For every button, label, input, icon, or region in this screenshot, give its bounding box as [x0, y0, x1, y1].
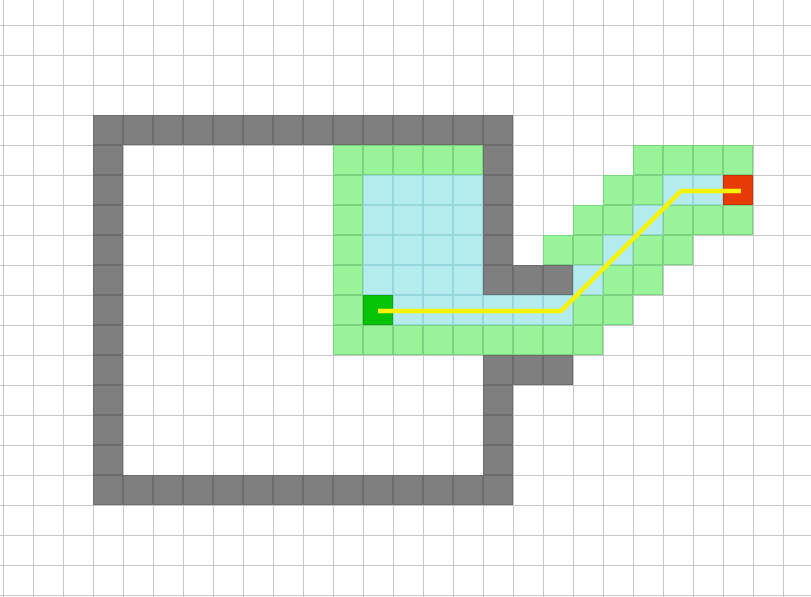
pathfinding-canvas[interactable]: [0, 0, 811, 597]
wall-cell[interactable]: [483, 115, 513, 145]
visited-cell[interactable]: [393, 175, 423, 205]
wall-cell[interactable]: [93, 325, 123, 355]
wall-cell[interactable]: [93, 295, 123, 325]
wall-cell[interactable]: [393, 475, 423, 505]
wall-cell[interactable]: [333, 475, 363, 505]
wall-cell[interactable]: [93, 145, 123, 175]
visited-cell[interactable]: [363, 235, 393, 265]
visited-cell[interactable]: [693, 175, 723, 205]
frontier-cell[interactable]: [423, 145, 453, 175]
wall-cell[interactable]: [93, 475, 123, 505]
visited-cell[interactable]: [423, 175, 453, 205]
wall-cell[interactable]: [273, 115, 303, 145]
visited-cell[interactable]: [453, 265, 483, 295]
wall-cell[interactable]: [183, 475, 213, 505]
wall-cell[interactable]: [363, 475, 393, 505]
visited-cell[interactable]: [363, 205, 393, 235]
wall-cell[interactable]: [543, 265, 573, 295]
visited-cell[interactable]: [453, 295, 483, 325]
wall-cell[interactable]: [543, 355, 573, 385]
frontier-cell[interactable]: [543, 325, 573, 355]
visited-cell[interactable]: [393, 205, 423, 235]
wall-cell[interactable]: [483, 145, 513, 175]
frontier-cell[interactable]: [603, 295, 633, 325]
wall-cell[interactable]: [93, 205, 123, 235]
visited-cell[interactable]: [603, 235, 633, 265]
visited-cell[interactable]: [423, 205, 453, 235]
wall-cell[interactable]: [483, 445, 513, 475]
frontier-cell[interactable]: [573, 295, 603, 325]
wall-cell[interactable]: [423, 115, 453, 145]
frontier-cell[interactable]: [393, 325, 423, 355]
wall-cell[interactable]: [153, 475, 183, 505]
wall-cell[interactable]: [93, 175, 123, 205]
frontier-cell[interactable]: [603, 265, 633, 295]
wall-cell[interactable]: [183, 115, 213, 145]
wall-cell[interactable]: [123, 115, 153, 145]
wall-cell[interactable]: [483, 355, 513, 385]
wall-cell[interactable]: [93, 445, 123, 475]
wall-cell[interactable]: [153, 115, 183, 145]
visited-cell[interactable]: [483, 295, 513, 325]
wall-cell[interactable]: [483, 475, 513, 505]
frontier-cell[interactable]: [723, 145, 753, 175]
frontier-cell[interactable]: [603, 205, 633, 235]
cell-layer: [0, 0, 811, 597]
wall-cell[interactable]: [513, 355, 543, 385]
visited-cell[interactable]: [423, 265, 453, 295]
wall-cell[interactable]: [483, 265, 513, 295]
visited-cell[interactable]: [633, 205, 663, 235]
frontier-cell[interactable]: [693, 145, 723, 175]
frontier-cell[interactable]: [573, 235, 603, 265]
frontier-cell[interactable]: [393, 145, 423, 175]
visited-cell[interactable]: [393, 295, 423, 325]
frontier-cell[interactable]: [633, 235, 663, 265]
frontier-cell[interactable]: [693, 205, 723, 235]
frontier-cell[interactable]: [723, 205, 753, 235]
wall-cell[interactable]: [513, 265, 543, 295]
wall-cell[interactable]: [363, 115, 393, 145]
wall-cell[interactable]: [93, 355, 123, 385]
wall-cell[interactable]: [453, 115, 483, 145]
visited-cell[interactable]: [363, 265, 393, 295]
visited-cell[interactable]: [453, 235, 483, 265]
wall-cell[interactable]: [213, 475, 243, 505]
visited-cell[interactable]: [513, 295, 543, 325]
visited-cell[interactable]: [393, 235, 423, 265]
wall-cell[interactable]: [423, 475, 453, 505]
frontier-cell[interactable]: [633, 265, 663, 295]
visited-cell[interactable]: [393, 265, 423, 295]
frontier-cell[interactable]: [423, 325, 453, 355]
frontier-cell[interactable]: [663, 235, 693, 265]
frontier-cell[interactable]: [333, 145, 363, 175]
wall-cell[interactable]: [243, 475, 273, 505]
wall-cell[interactable]: [483, 205, 513, 235]
visited-cell[interactable]: [453, 205, 483, 235]
frontier-cell[interactable]: [453, 145, 483, 175]
frontier-cell[interactable]: [363, 145, 393, 175]
visited-cell[interactable]: [663, 175, 693, 205]
frontier-cell[interactable]: [333, 265, 363, 295]
wall-cell[interactable]: [123, 475, 153, 505]
wall-cell[interactable]: [243, 115, 273, 145]
frontier-cell[interactable]: [633, 145, 663, 175]
wall-cell[interactable]: [303, 475, 333, 505]
frontier-cell[interactable]: [573, 205, 603, 235]
frontier-cell[interactable]: [543, 235, 573, 265]
wall-cell[interactable]: [483, 235, 513, 265]
frontier-cell[interactable]: [453, 325, 483, 355]
wall-cell[interactable]: [303, 115, 333, 145]
frontier-cell[interactable]: [513, 325, 543, 355]
goal-cell[interactable]: [723, 175, 753, 205]
wall-cell[interactable]: [483, 175, 513, 205]
frontier-cell[interactable]: [663, 205, 693, 235]
frontier-cell[interactable]: [483, 325, 513, 355]
visited-cell[interactable]: [453, 175, 483, 205]
frontier-cell[interactable]: [363, 325, 393, 355]
wall-cell[interactable]: [213, 115, 243, 145]
frontier-cell[interactable]: [333, 325, 363, 355]
start-cell[interactable]: [363, 295, 393, 325]
wall-cell[interactable]: [93, 265, 123, 295]
visited-cell[interactable]: [423, 235, 453, 265]
visited-cell[interactable]: [363, 175, 393, 205]
frontier-cell[interactable]: [633, 175, 663, 205]
frontier-cell[interactable]: [333, 175, 363, 205]
visited-cell[interactable]: [573, 265, 603, 295]
frontier-cell[interactable]: [333, 205, 363, 235]
wall-cell[interactable]: [273, 475, 303, 505]
wall-cell[interactable]: [393, 115, 423, 145]
wall-cell[interactable]: [93, 415, 123, 445]
wall-cell[interactable]: [483, 385, 513, 415]
wall-cell[interactable]: [333, 115, 363, 145]
visited-cell[interactable]: [543, 295, 573, 325]
wall-cell[interactable]: [93, 115, 123, 145]
frontier-cell[interactable]: [573, 325, 603, 355]
visited-cell[interactable]: [423, 295, 453, 325]
wall-cell[interactable]: [483, 415, 513, 445]
frontier-cell[interactable]: [333, 235, 363, 265]
frontier-cell[interactable]: [603, 175, 633, 205]
wall-cell[interactable]: [93, 385, 123, 415]
frontier-cell[interactable]: [333, 295, 363, 325]
wall-cell[interactable]: [453, 475, 483, 505]
wall-cell[interactable]: [93, 235, 123, 265]
frontier-cell[interactable]: [663, 145, 693, 175]
